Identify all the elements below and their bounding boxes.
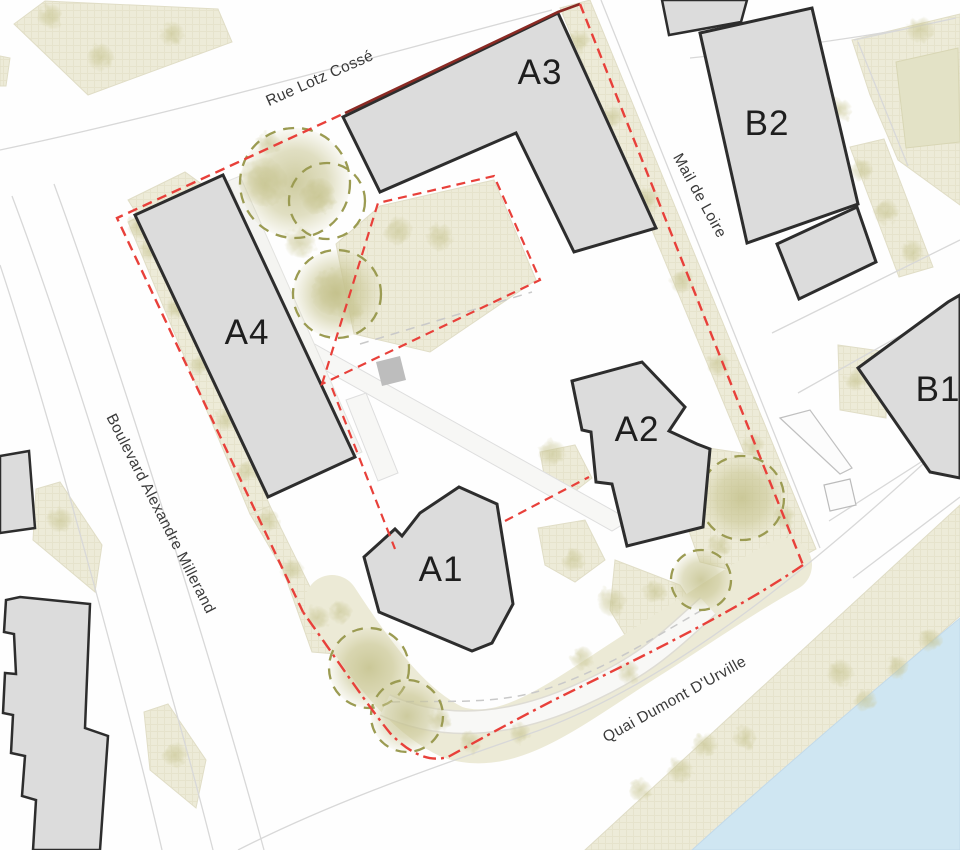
building-west-small-shape xyxy=(0,451,35,533)
building-label-a4: A4 xyxy=(225,313,270,353)
kiosk-square xyxy=(824,479,856,511)
building-label-a2: A2 xyxy=(615,410,660,450)
site-plan: A3 A4 A1 A2 B2 B1 Rue Lotz Cossé Mail de… xyxy=(0,0,960,850)
green-wedge-left-edge xyxy=(0,56,10,86)
tree-protection-circle xyxy=(371,680,443,752)
kiosk-wedge xyxy=(780,410,852,474)
building-label-b2: B2 xyxy=(745,104,790,144)
building-label-b1: B1 xyxy=(916,370,960,410)
building-label-a1: A1 xyxy=(419,550,464,590)
tree-protection-circle xyxy=(671,550,731,610)
site-plan-canvas xyxy=(0,0,960,850)
tree-protection-circle xyxy=(700,456,784,540)
building-southwest-shape xyxy=(3,597,108,850)
building-label-a3: A3 xyxy=(518,53,563,93)
tree-protection-circle xyxy=(293,250,381,338)
green-field-northeast xyxy=(896,48,960,148)
